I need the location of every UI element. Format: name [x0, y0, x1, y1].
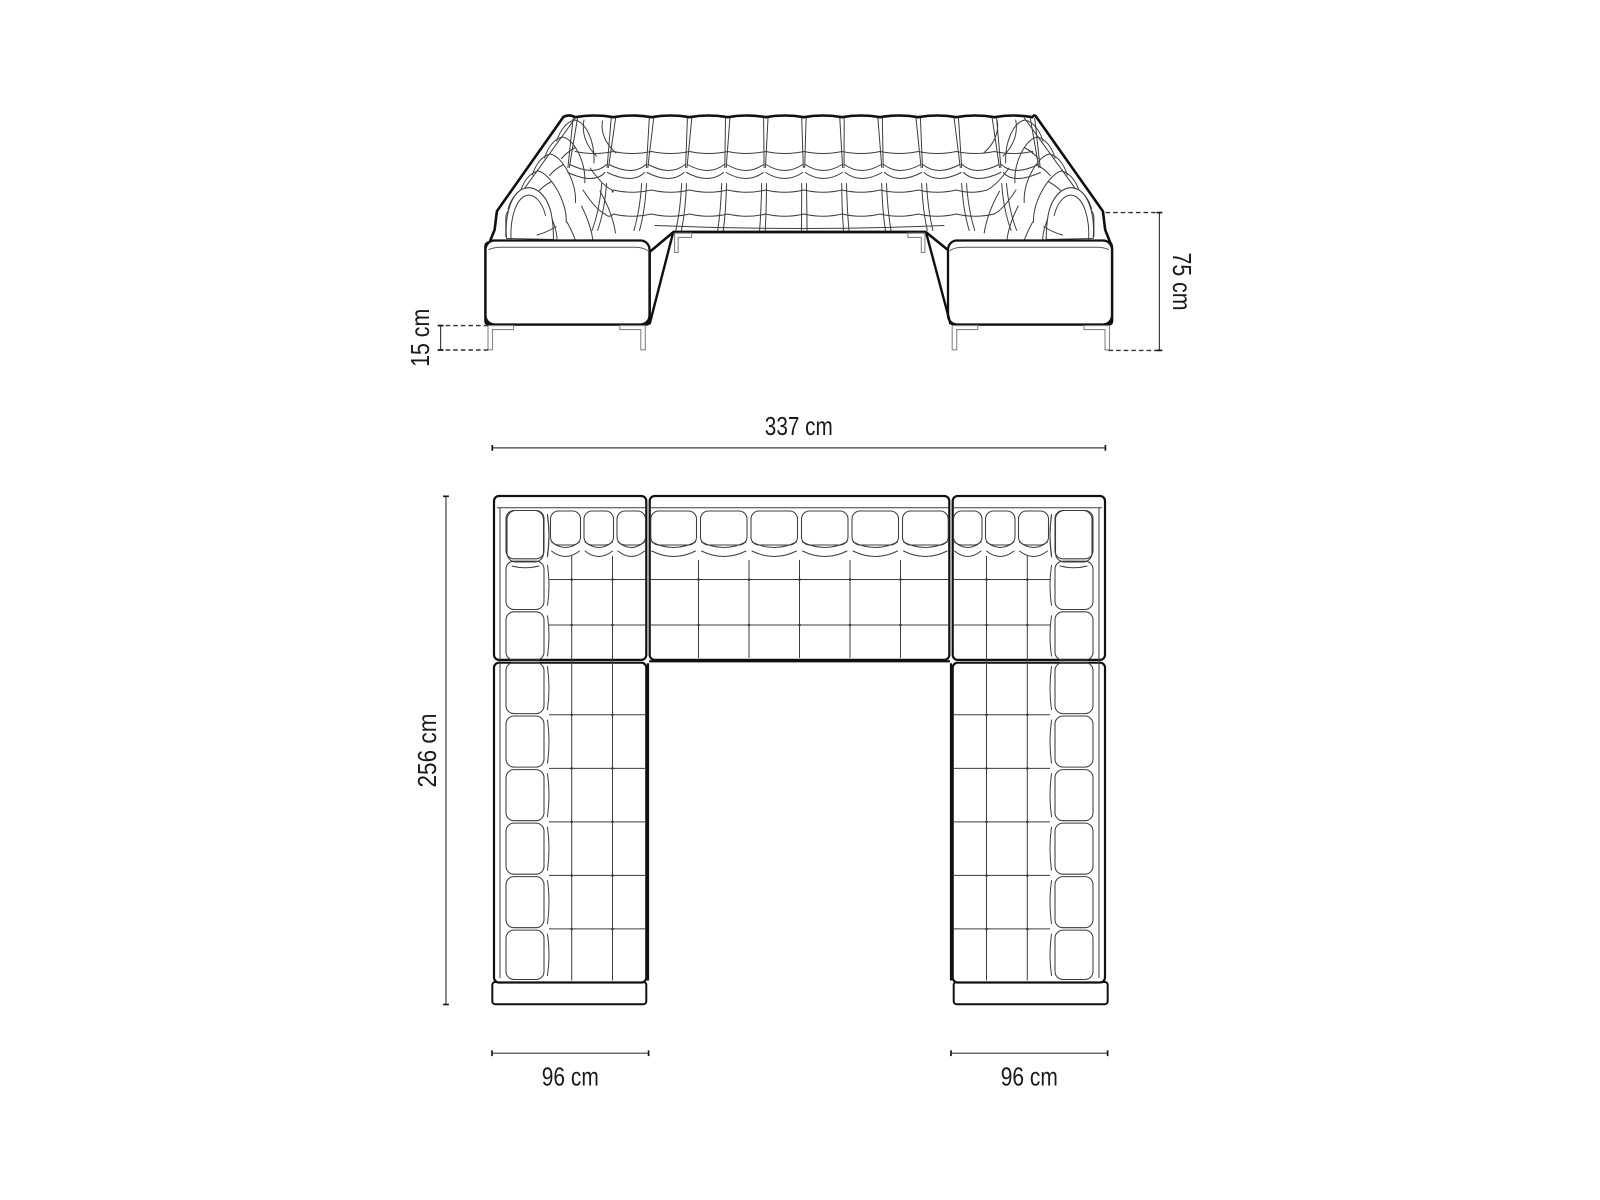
svg-text:75 cm: 75 cm [1167, 253, 1197, 311]
svg-text:256 cm: 256 cm [412, 714, 442, 788]
svg-text:96 cm: 96 cm [1001, 1062, 1058, 1092]
svg-text:96 cm: 96 cm [542, 1062, 599, 1092]
svg-text:15 cm: 15 cm [405, 309, 435, 367]
svg-text:337 cm: 337 cm [765, 411, 833, 441]
